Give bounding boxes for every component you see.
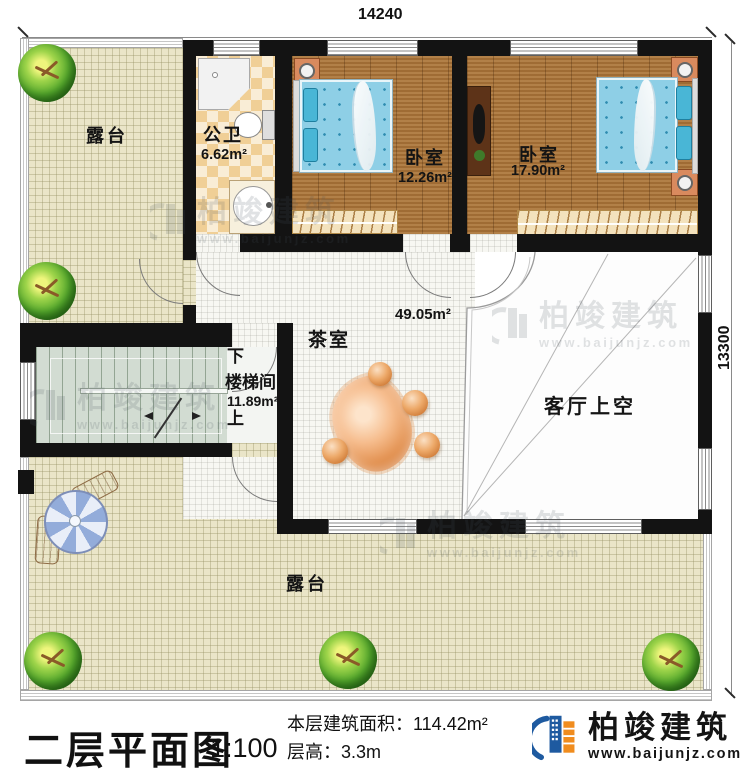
terrace-top-label: 露台 [86, 127, 128, 147]
wall [418, 40, 510, 56]
floor-height-label: 层高： [287, 742, 341, 762]
bed-headboard [293, 80, 300, 172]
shower-drain [212, 72, 218, 78]
dimension-top: 14240 [358, 6, 403, 24]
pillow [676, 126, 692, 160]
stair-handrail [80, 388, 228, 394]
terrace-bottom-label: 露台 [286, 575, 328, 595]
plan-scale: 1:100 [210, 733, 278, 764]
window [327, 40, 418, 56]
wall [183, 40, 213, 56]
window [328, 519, 417, 534]
wall [260, 40, 327, 56]
wall [183, 56, 196, 260]
terrace-bottom-railing [20, 690, 712, 701]
wall [450, 234, 470, 252]
wall [20, 443, 232, 457]
door-opening [196, 234, 240, 252]
decor-pebble [414, 432, 440, 458]
window [213, 40, 260, 56]
door-opening [183, 260, 196, 305]
terrace-bottom-right-railing [703, 526, 712, 690]
wall [698, 40, 712, 255]
window [698, 255, 712, 313]
bedroom-small-area: 12.26m² [398, 171, 452, 187]
stair-down-label: 下 [227, 348, 244, 367]
stair-direction-arrow [144, 412, 153, 420]
railing-pilaster [18, 470, 34, 494]
decor-pebble [402, 390, 428, 416]
tea-room-label: 茶室 [308, 331, 350, 352]
dimension-tick [724, 687, 735, 698]
dimension-tick [705, 26, 716, 37]
bedroom-small-label: 卧室 [405, 149, 445, 169]
desk-plant [474, 150, 485, 161]
wall [452, 56, 467, 234]
bathroom-area: 6.62m² [201, 148, 247, 164]
toilet-tank [262, 110, 275, 140]
wall [642, 519, 712, 534]
wardrobe [292, 210, 398, 234]
stairwell-area: 11.89m² [227, 394, 278, 409]
pillow [303, 88, 318, 122]
company-name: 柏竣建筑 [588, 712, 742, 743]
window [698, 448, 712, 510]
tea-room-area: 49.05m² [395, 307, 451, 324]
floor-area-value: 114.42m² [413, 714, 488, 734]
wall [275, 56, 292, 234]
door-opening [232, 323, 277, 347]
bathroom-label: 公卫 [203, 126, 243, 146]
parasol [44, 490, 108, 554]
wall [293, 519, 328, 534]
dimension-line-right [731, 42, 732, 696]
wall [20, 420, 36, 457]
floor-height-value: 3.3m [341, 742, 381, 762]
wall [20, 347, 36, 362]
window [510, 40, 638, 56]
pillow [303, 128, 318, 162]
stair-up-label: 上 [227, 410, 244, 429]
door-opening [232, 443, 277, 457]
company-website: www.baijunjz.com [588, 746, 742, 762]
wall [183, 305, 196, 323]
company-logo-icon [532, 708, 580, 766]
bedroom-large-area: 17.90m² [511, 164, 565, 180]
desk-monitor [473, 104, 485, 144]
pillow [676, 86, 692, 120]
living-void-label: 客厅上空 [544, 396, 636, 418]
dimension-tick [724, 33, 735, 44]
window [20, 362, 36, 420]
wall [277, 323, 293, 534]
stair-flight-outline [50, 358, 222, 434]
floor-plan-page: { "dimensions": { "top": "14240", "right… [0, 0, 750, 784]
plan-title: 二层平面图 [24, 720, 238, 784]
floor-area-label: 本层建筑面积： [287, 714, 413, 734]
wall [698, 313, 712, 448]
dimension-line-top [22, 37, 712, 38]
company-logo: 柏竣建筑 www.baijunjz.com [532, 708, 742, 766]
dimension-tick [17, 26, 28, 37]
decor-pebble [368, 362, 392, 386]
wall [417, 519, 525, 534]
sliding-door [525, 519, 642, 534]
wall [517, 234, 712, 252]
wardrobe [517, 210, 698, 236]
decor-pebble [322, 438, 348, 464]
stairwell-label: 楼梯间 [225, 374, 276, 393]
plan-info: 本层建筑面积：114.42m² 层高：3.3m [287, 711, 488, 767]
stair-direction-arrow [192, 412, 201, 420]
wall [20, 323, 232, 347]
wall [240, 234, 403, 252]
sink-faucet [266, 202, 272, 208]
